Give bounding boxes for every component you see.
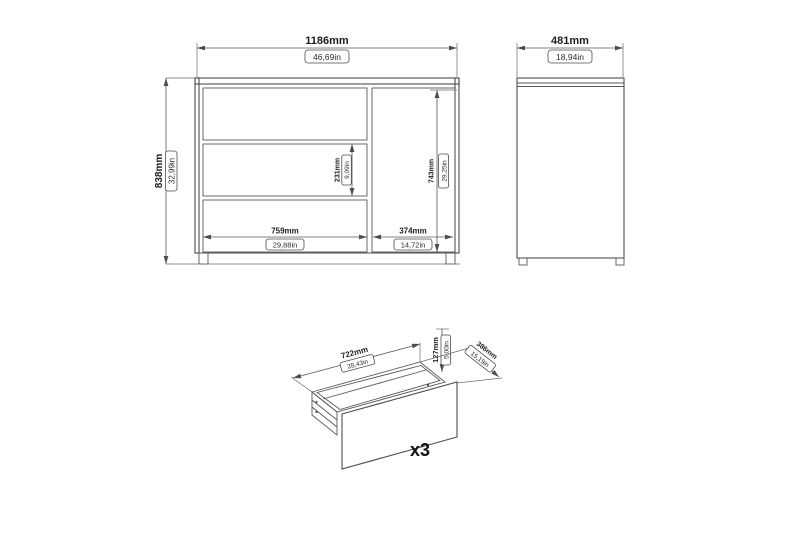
drawer-section-in-label: 29,88in	[273, 240, 298, 249]
front-height-mm-label: 838mm	[154, 154, 165, 189]
front-height-dimension: 838mm 32,99in	[154, 78, 460, 264]
drawer-section-width-dimension: 759mm 29,88in	[203, 227, 367, 251]
drawer-height-dimension: 127mm 5,00in	[431, 329, 451, 372]
door-section-in-label: 14,72in	[401, 240, 426, 249]
side-depth-mm-label: 481mm	[551, 35, 589, 47]
side-depth-dimension: 481mm 18,94in	[517, 35, 623, 77]
dimension-drawing: 1186mm 46,69in 838mm 32,99in 231mm 9,09i…	[0, 0, 800, 533]
door-height-dimension: 743mm 29,25in	[429, 90, 458, 252]
drawer-view: 722mm 28,43in 127mm 5,00in 386mm 15,19	[291, 329, 502, 469]
side-depth-in-label: 18,94in	[556, 52, 584, 62]
front-width-in-label: 46,69in	[313, 52, 341, 62]
side-view: 481mm 18,94in	[517, 35, 624, 265]
front-width-mm-label: 1186mm	[305, 35, 349, 47]
drawer-height-in-label: 5,00in	[444, 341, 451, 359]
front-width-dimension: 1186mm 46,69in	[197, 35, 457, 77]
door-height-in-label: 29,25in	[441, 160, 448, 182]
middle-drawer-height-dimension: 231mm 9,09in	[335, 144, 353, 196]
side-view-outline	[517, 78, 624, 265]
door-section-width-dimension: 374mm 14,72in	[373, 227, 453, 251]
middle-drawer-mm-label: 231mm	[335, 158, 342, 182]
front-view: 1186mm 46,69in 838mm 32,99in 231mm 9,09i…	[154, 35, 460, 264]
front-height-in-label: 32,99in	[167, 158, 176, 184]
drawer-box-geometry	[312, 362, 457, 469]
drawer-quantity-label: x3	[410, 440, 430, 460]
middle-drawer-in-label: 9,09in	[344, 161, 351, 179]
front-view-outline	[195, 78, 459, 264]
door-height-mm-label: 743mm	[429, 159, 436, 183]
drawer-section-mm-label: 759mm	[271, 227, 299, 236]
door-section-mm-label: 374mm	[399, 227, 427, 236]
drawer-height-mm-label: 127mm	[431, 337, 440, 363]
